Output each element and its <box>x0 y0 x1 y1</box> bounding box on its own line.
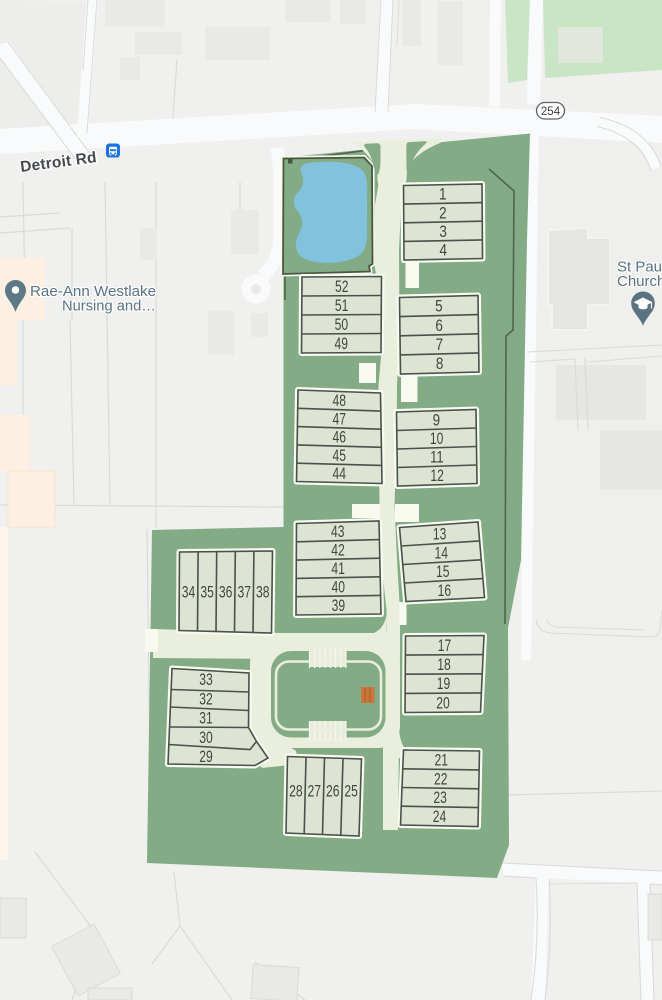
svg-text:34: 34 <box>182 584 196 602</box>
svg-text:13: 13 <box>433 526 447 544</box>
svg-text:23: 23 <box>433 789 447 807</box>
svg-text:42: 42 <box>331 542 345 560</box>
svg-text:6: 6 <box>435 317 443 335</box>
svg-text:9: 9 <box>433 412 441 430</box>
svg-text:21: 21 <box>434 752 448 770</box>
svg-text:47: 47 <box>332 410 346 428</box>
svg-text:26: 26 <box>326 783 340 801</box>
svg-text:18: 18 <box>437 656 451 674</box>
svg-text:36: 36 <box>219 584 233 602</box>
svg-text:254: 254 <box>541 106 561 118</box>
svg-text:50: 50 <box>335 316 349 334</box>
svg-text:39: 39 <box>332 597 346 615</box>
svg-text:44: 44 <box>332 465 346 483</box>
svg-text:46: 46 <box>332 429 346 447</box>
svg-text:3: 3 <box>439 223 447 241</box>
svg-text:11: 11 <box>430 449 444 467</box>
svg-text:5: 5 <box>435 298 443 316</box>
svg-text:40: 40 <box>332 578 346 596</box>
svg-text:28: 28 <box>289 783 303 801</box>
svg-text:22: 22 <box>434 770 448 788</box>
svg-text:2: 2 <box>439 204 447 222</box>
svg-text:45: 45 <box>332 447 346 465</box>
svg-text:15: 15 <box>436 563 450 581</box>
svg-text:14: 14 <box>434 544 448 562</box>
svg-text:Church…: Church… <box>617 273 662 290</box>
svg-text:41: 41 <box>331 560 345 578</box>
svg-text:30: 30 <box>199 729 213 747</box>
svg-text:27: 27 <box>308 783 322 801</box>
svg-text:4: 4 <box>439 242 447 260</box>
svg-text:38: 38 <box>256 584 270 602</box>
svg-text:32: 32 <box>199 691 213 709</box>
svg-text:33: 33 <box>199 671 213 689</box>
svg-text:51: 51 <box>335 297 349 315</box>
svg-text:31: 31 <box>199 710 213 728</box>
svg-text:7: 7 <box>436 336 444 354</box>
svg-text:Nursing and…: Nursing and… <box>62 298 156 315</box>
svg-text:12: 12 <box>430 467 444 485</box>
svg-text:43: 43 <box>331 523 345 541</box>
svg-text:49: 49 <box>335 335 349 353</box>
svg-text:17: 17 <box>438 637 452 655</box>
svg-text:35: 35 <box>200 584 214 602</box>
svg-text:25: 25 <box>344 783 358 801</box>
svg-text:24: 24 <box>433 808 447 826</box>
svg-text:10: 10 <box>430 430 444 448</box>
svg-text:37: 37 <box>237 584 251 602</box>
svg-text:16: 16 <box>438 582 452 600</box>
svg-text:20: 20 <box>436 694 450 712</box>
svg-text:1: 1 <box>439 186 447 204</box>
svg-text:48: 48 <box>332 392 346 410</box>
svg-text:19: 19 <box>437 675 451 693</box>
svg-text:8: 8 <box>436 355 444 373</box>
svg-text:29: 29 <box>199 748 213 766</box>
svg-text:52: 52 <box>335 278 349 296</box>
